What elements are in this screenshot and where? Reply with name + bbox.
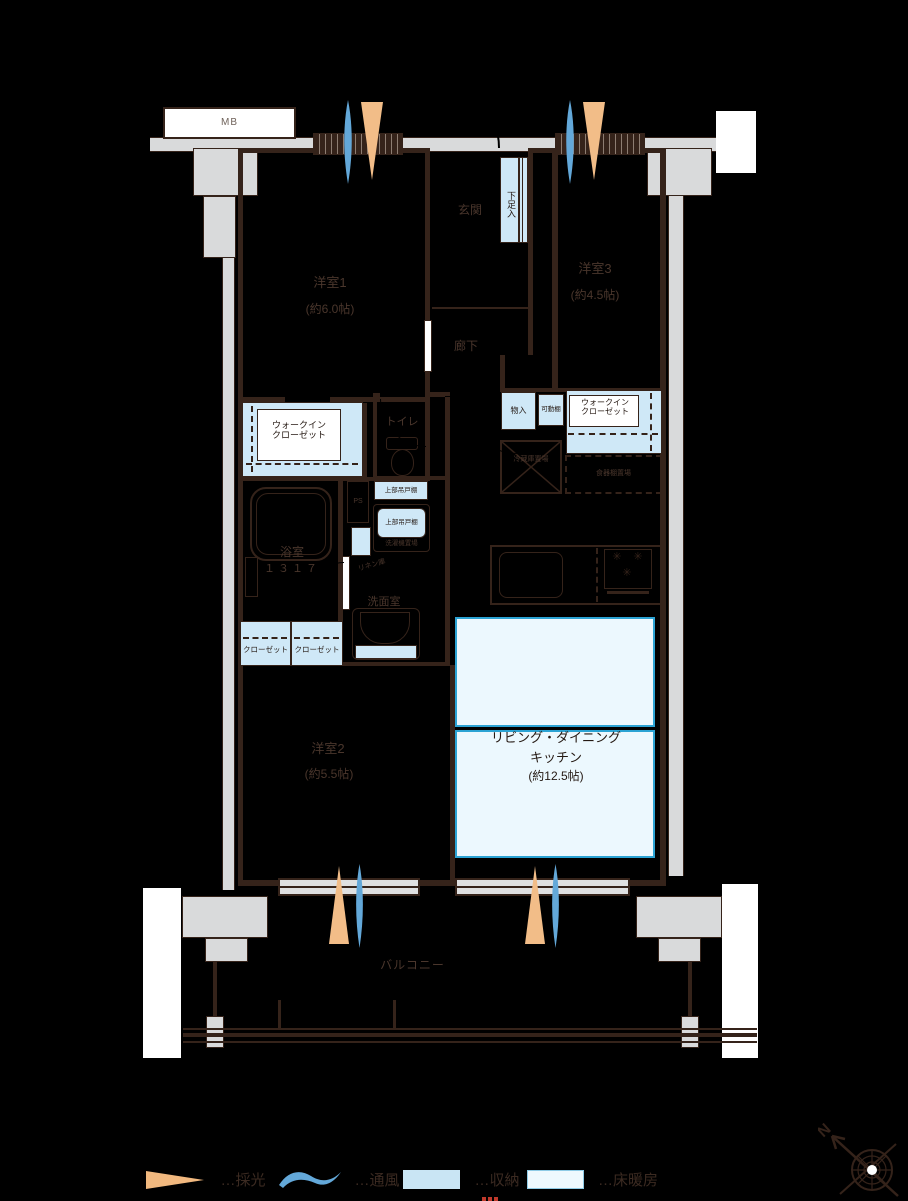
closet2-door-arc-l (294, 667, 318, 693)
kitchen-sink (499, 552, 563, 598)
toilet-bowl (391, 449, 414, 476)
floor-heating-panel-upper (455, 617, 655, 727)
mask-bottom-left (143, 888, 181, 1058)
upper-hanging-cabinet-2: 上部吊戸棚 (377, 508, 426, 538)
wall (552, 152, 558, 392)
closet2-door-arc-r (318, 667, 342, 693)
ldk-label: リビング・ダイニング キッチン (約12.5帖) (458, 728, 654, 785)
shoe-cabinet-door-arc-upper (460, 165, 498, 205)
closet2-pipe (294, 637, 339, 639)
wall (373, 476, 449, 480)
balcony-window-yoshitsu2 (278, 878, 420, 896)
wall (528, 152, 533, 355)
red-mark (494, 1197, 498, 1201)
legend-daylight-label: …採光 (210, 1172, 276, 1189)
closet-1 (240, 621, 291, 666)
washroom-label: 洗面室 (356, 596, 412, 609)
wic1-label-line2: クローゼット (257, 431, 341, 441)
balcony-hatch-left (206, 1016, 224, 1048)
stove-burner-icon: ✳ (628, 551, 648, 564)
fridge-space-label: 冷蔵庫置場 (502, 456, 560, 464)
movable-shelf: 可動棚 (538, 394, 564, 426)
kitchen-divider (596, 548, 598, 602)
wall (445, 397, 450, 665)
pipe-space: PS (347, 481, 369, 523)
wic1-pipe2 (246, 463, 358, 465)
yoshitsu3-label: 洋室3 (564, 262, 626, 277)
washer-space-label: 洗濯機置場 (373, 540, 430, 547)
wall (343, 662, 450, 666)
pillar-bottom-right (636, 896, 722, 938)
wic2-label-line2: クローゼット (566, 408, 644, 417)
ventilation-leaf-icon (548, 864, 563, 948)
ventilation-leaf-icon (352, 864, 367, 948)
pillar-bottom-right-step (658, 938, 701, 962)
closet-2 (291, 621, 343, 666)
rouka-label: 廊下 (444, 340, 488, 354)
compass: N (818, 1120, 904, 1200)
closet-2-label: クローゼット (291, 646, 343, 654)
closet1-door-arc-l (243, 667, 267, 693)
ventilation-leaf-icon (562, 100, 578, 184)
balcony-railing-mid (183, 1033, 757, 1037)
linen-cabinet (351, 527, 371, 556)
entrance-door-arc (435, 78, 500, 148)
ldk-door-arc (458, 394, 518, 454)
balcony-railing-top (183, 1028, 757, 1030)
wall (373, 393, 380, 397)
wall (428, 393, 445, 397)
ldk-label-line2: キッチン (458, 748, 654, 768)
wic2-pipe2 (568, 433, 658, 435)
legend-floor-heating-swatch (527, 1170, 584, 1189)
linen-label: リネン庫 (348, 556, 396, 577)
wic2-label: ウォークイン クローゼット (566, 399, 644, 417)
wall-right (660, 150, 666, 886)
mask-bottom-right (722, 884, 758, 1058)
legend-storage-label: …収納 (464, 1172, 530, 1189)
mask-top-right (716, 111, 756, 173)
wall (425, 152, 430, 322)
upper-hanging-cabinet-1: 上部吊戸棚 (374, 481, 428, 500)
bathroom-label: 浴室 (262, 546, 322, 560)
yoshitsu3-size: (約4.5帖) (556, 289, 634, 303)
daylight-cone-icon (329, 866, 349, 946)
yoshitsu1-size: (約6.0帖) (289, 303, 371, 317)
pillar-top-right (647, 148, 712, 196)
wall (500, 355, 505, 392)
legend-daylight-icon (146, 1170, 206, 1190)
daylight-cone-icon (361, 102, 383, 182)
balcony-line (688, 962, 692, 1016)
legend-ventilation-label: …通風 (344, 1172, 410, 1189)
genkan-step-line (432, 307, 530, 309)
cupboard-space-label: 食器棚置場 (567, 470, 660, 478)
pillar-bottom-left-step (205, 938, 248, 962)
wall (373, 397, 377, 480)
balcony-line (213, 962, 217, 1016)
wall (240, 148, 313, 153)
stove-burner-icon: ✳ (607, 551, 627, 564)
wall (630, 880, 666, 886)
wic1-door-arc (285, 352, 329, 398)
daylight-cone-icon (525, 866, 545, 946)
red-mark (488, 1197, 492, 1201)
pillar-top-left (193, 148, 258, 196)
balcony-railing-bottom (183, 1041, 757, 1043)
closet-1-label: クローゼット (240, 646, 291, 654)
window-yoshitsu1 (313, 133, 403, 155)
ldk-size: (約12.5帖) (458, 767, 654, 785)
closet1-pipe (243, 637, 287, 639)
stove-burner-icon: ✳ (617, 567, 637, 580)
window-track-line (280, 886, 418, 888)
red-mark (482, 1197, 486, 1201)
wic2-pipe (650, 393, 652, 451)
yoshitsu2-size: (約5.5帖) (290, 768, 368, 782)
ldk-label-line1: リビング・ダイニング (458, 728, 654, 748)
shoe-cabinet-divider (518, 158, 520, 242)
wall (363, 403, 367, 477)
wall (240, 880, 278, 886)
door-leaf-yoshitsu1 (424, 320, 432, 372)
outer-wall-left-strip (222, 258, 235, 890)
yoshitsu1-door-arc (377, 322, 424, 370)
meter-box-label: MB (163, 107, 296, 139)
genkan-label: 玄関 (446, 204, 494, 218)
pillar-bottom-left (182, 896, 268, 938)
balcony-label: バルコニー (355, 959, 470, 973)
shoe-cabinet-label: 下足入 (501, 172, 515, 236)
balcony-hatch-right (681, 1016, 699, 1048)
legend-floor-heating-label: …床暖房 (587, 1172, 669, 1189)
railing-post (278, 1000, 281, 1030)
closet1-door-arc-r (267, 667, 291, 693)
pillar-top-left-step (203, 196, 236, 258)
outer-wall-right-strip (668, 196, 684, 876)
shoe-cabinet-divider2 (522, 158, 523, 242)
floor-plan: MB ウォークイン ク (0, 0, 908, 1201)
yoshitsu1-label: 洋室1 (300, 276, 360, 291)
railing-post (393, 1000, 396, 1030)
legend-ventilation-icon (278, 1168, 342, 1192)
compass-center-dot (867, 1165, 877, 1175)
stove-front-line (607, 591, 649, 594)
wic1-label: ウォークイン クローゼット (257, 421, 341, 441)
ventilation-leaf-icon (340, 100, 356, 184)
legend-storage-swatch (403, 1170, 460, 1189)
daylight-cone-icon (583, 102, 605, 182)
wall-left (238, 148, 243, 886)
yoshitsu2-label: 洋室2 (297, 742, 359, 757)
